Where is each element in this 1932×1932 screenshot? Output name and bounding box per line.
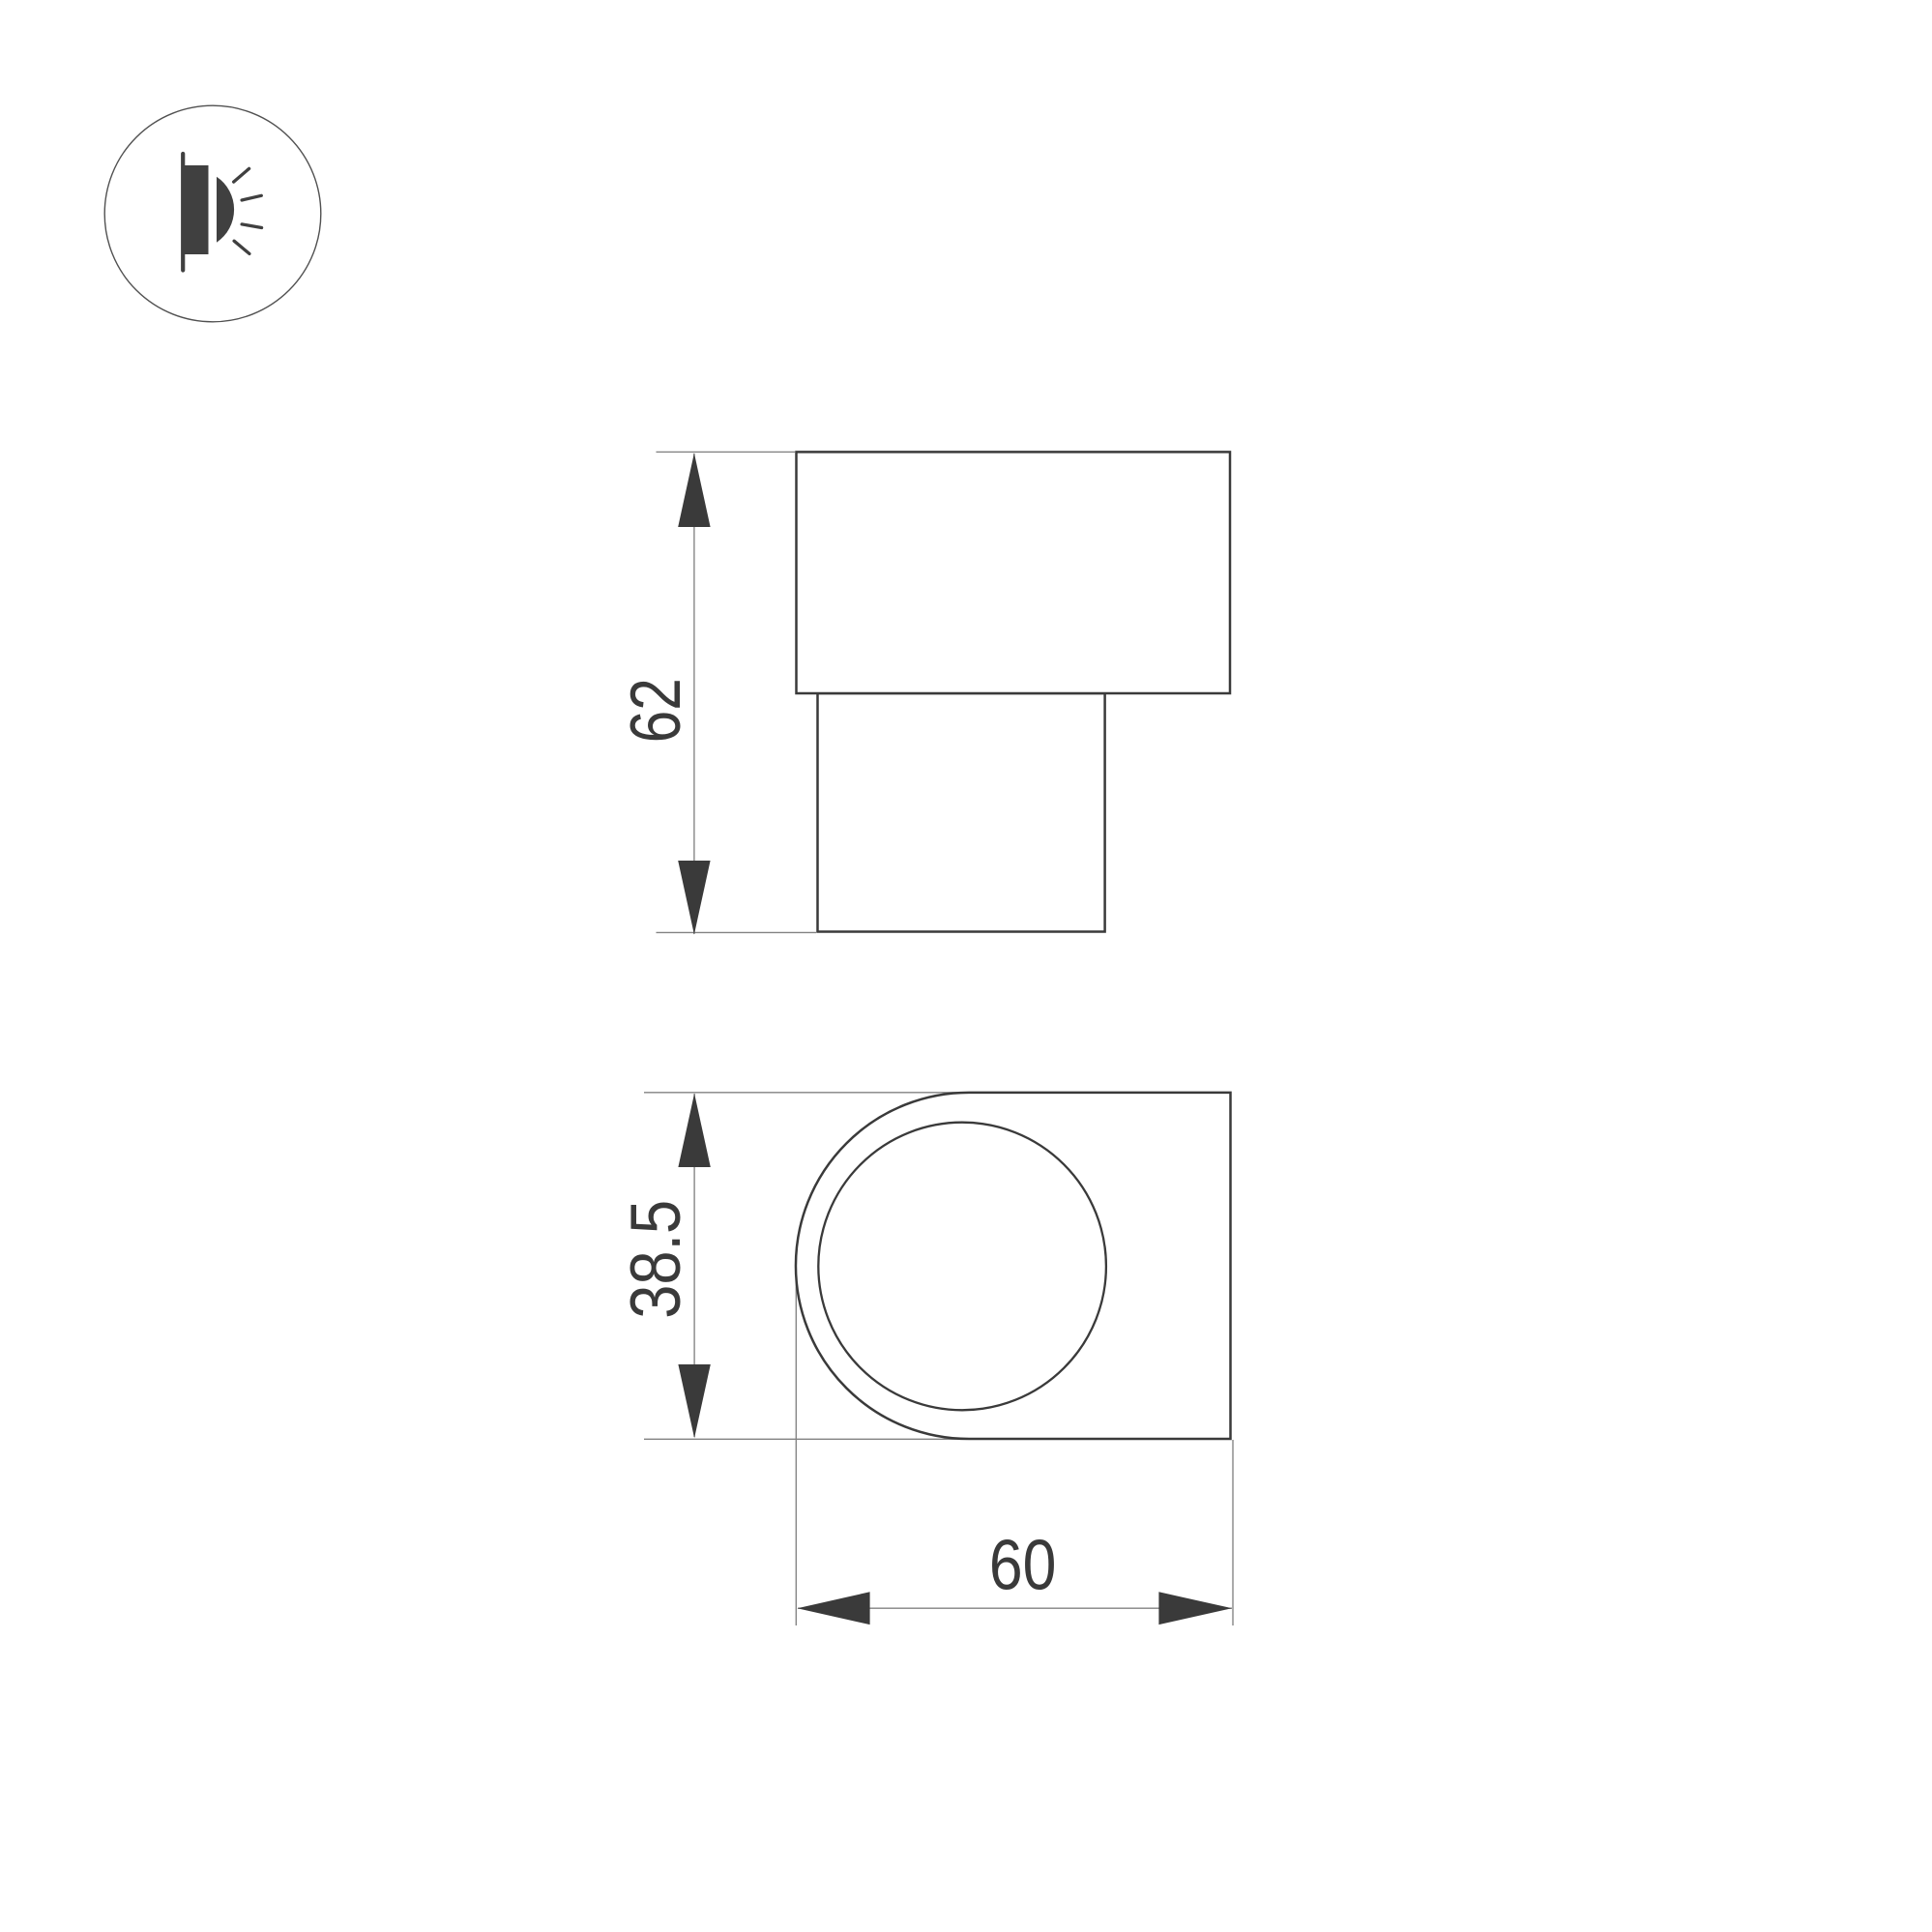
svg-text:60: 60 <box>989 1525 1057 1605</box>
svg-text:62: 62 <box>615 678 695 743</box>
svg-text:38.5: 38.5 <box>615 1200 695 1319</box>
